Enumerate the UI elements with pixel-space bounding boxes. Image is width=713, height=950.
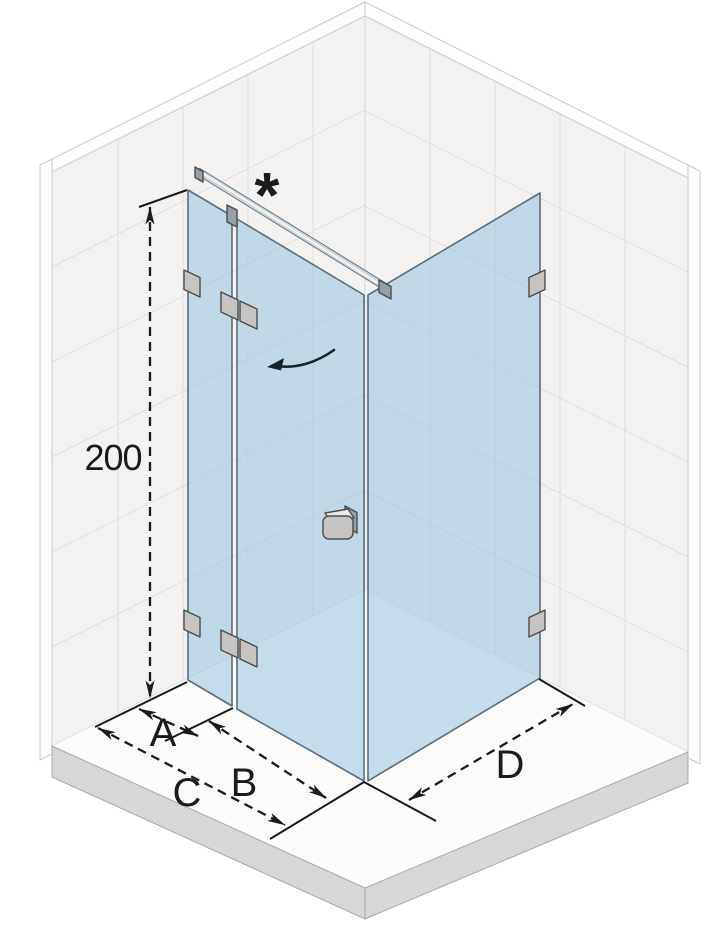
handle-knob-front	[323, 516, 353, 539]
wall-side-band-left	[40, 159, 52, 760]
glass-door-panel	[237, 219, 364, 781]
dim-b-label: B	[231, 761, 258, 805]
dim-c-label: C	[173, 771, 202, 815]
glass-side-panel	[368, 193, 540, 781]
dim-d-label: D	[496, 743, 525, 787]
diagram-canvas: 200 A B C D *	[0, 0, 713, 950]
shower-enclosure-diagram: 200 A B C D *	[0, 0, 713, 950]
dim-a-label: A	[150, 711, 177, 755]
asterisk-marker: *	[255, 159, 280, 231]
wall-side-band-right	[688, 165, 700, 764]
height-dimension-label: 200	[84, 437, 141, 478]
